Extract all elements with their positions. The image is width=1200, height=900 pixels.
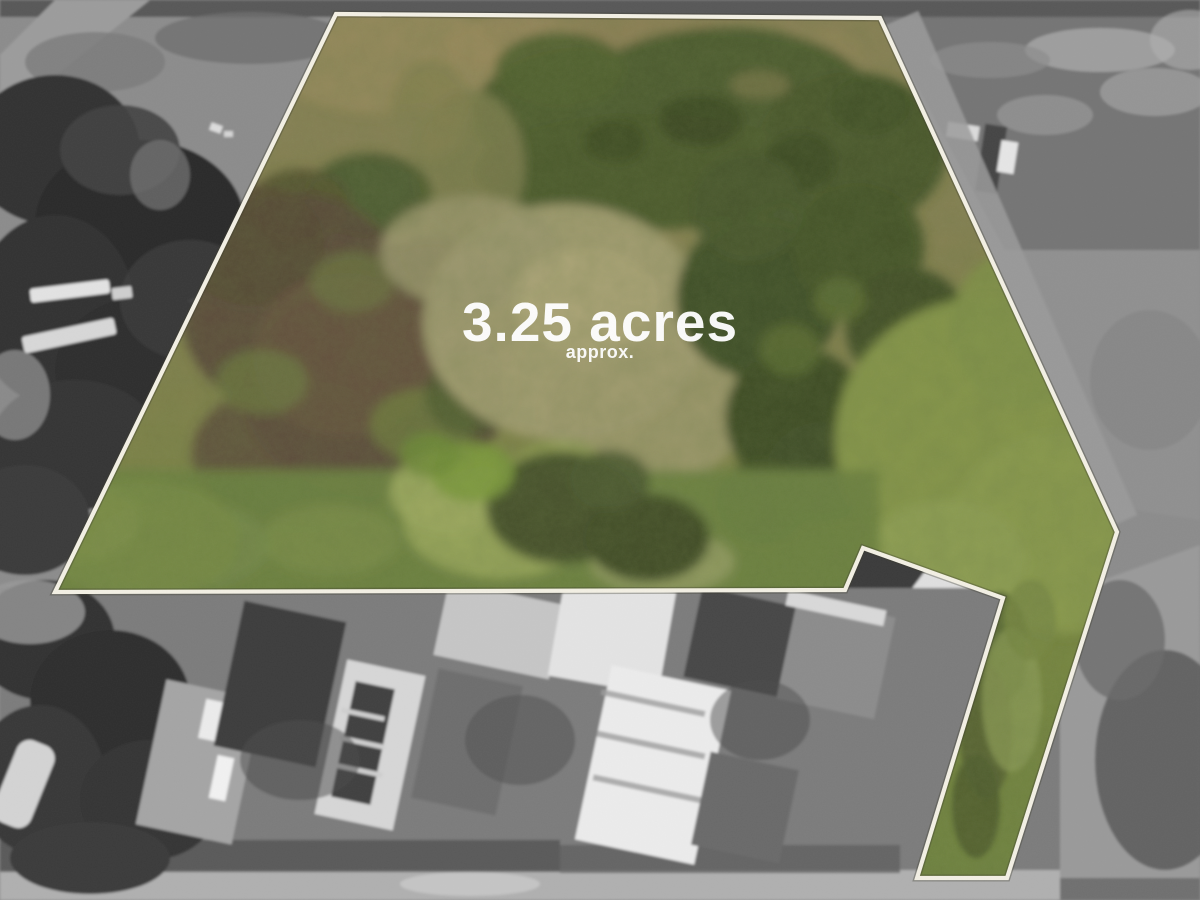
aerial-photo-canvas: 3.25 acres approx. xyxy=(0,0,1200,900)
aerial-property-photo: 3.25 acres approx. xyxy=(0,0,1200,900)
photo-grain-overlay xyxy=(0,0,1200,900)
